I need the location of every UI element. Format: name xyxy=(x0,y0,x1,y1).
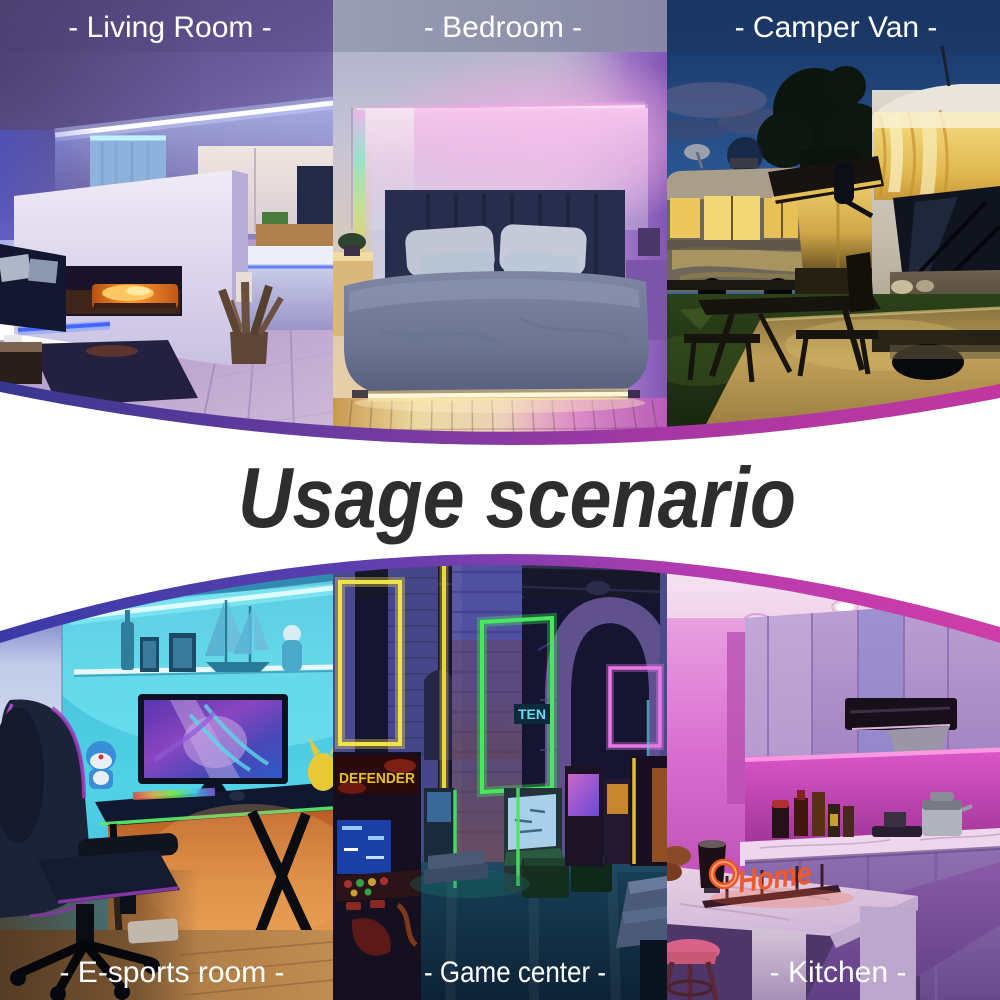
svg-text:- Bedroom -: - Bedroom - xyxy=(424,11,582,44)
svg-text:- Kitchen -: - Kitchen - xyxy=(770,956,907,989)
svg-text:- Camper Van -: - Camper Van - xyxy=(735,11,938,44)
svg-text:Usage scenario: Usage scenario xyxy=(238,451,796,546)
svg-text:- E-sports room -: - E-sports room - xyxy=(59,956,284,989)
svg-text:DEFENDER: DEFENDER xyxy=(339,770,415,787)
svg-text:TEN: TEN xyxy=(518,706,546,722)
svg-text:- Game center -: - Game center - xyxy=(424,956,606,989)
svg-text:- Living Room -: - Living Room - xyxy=(68,11,271,44)
